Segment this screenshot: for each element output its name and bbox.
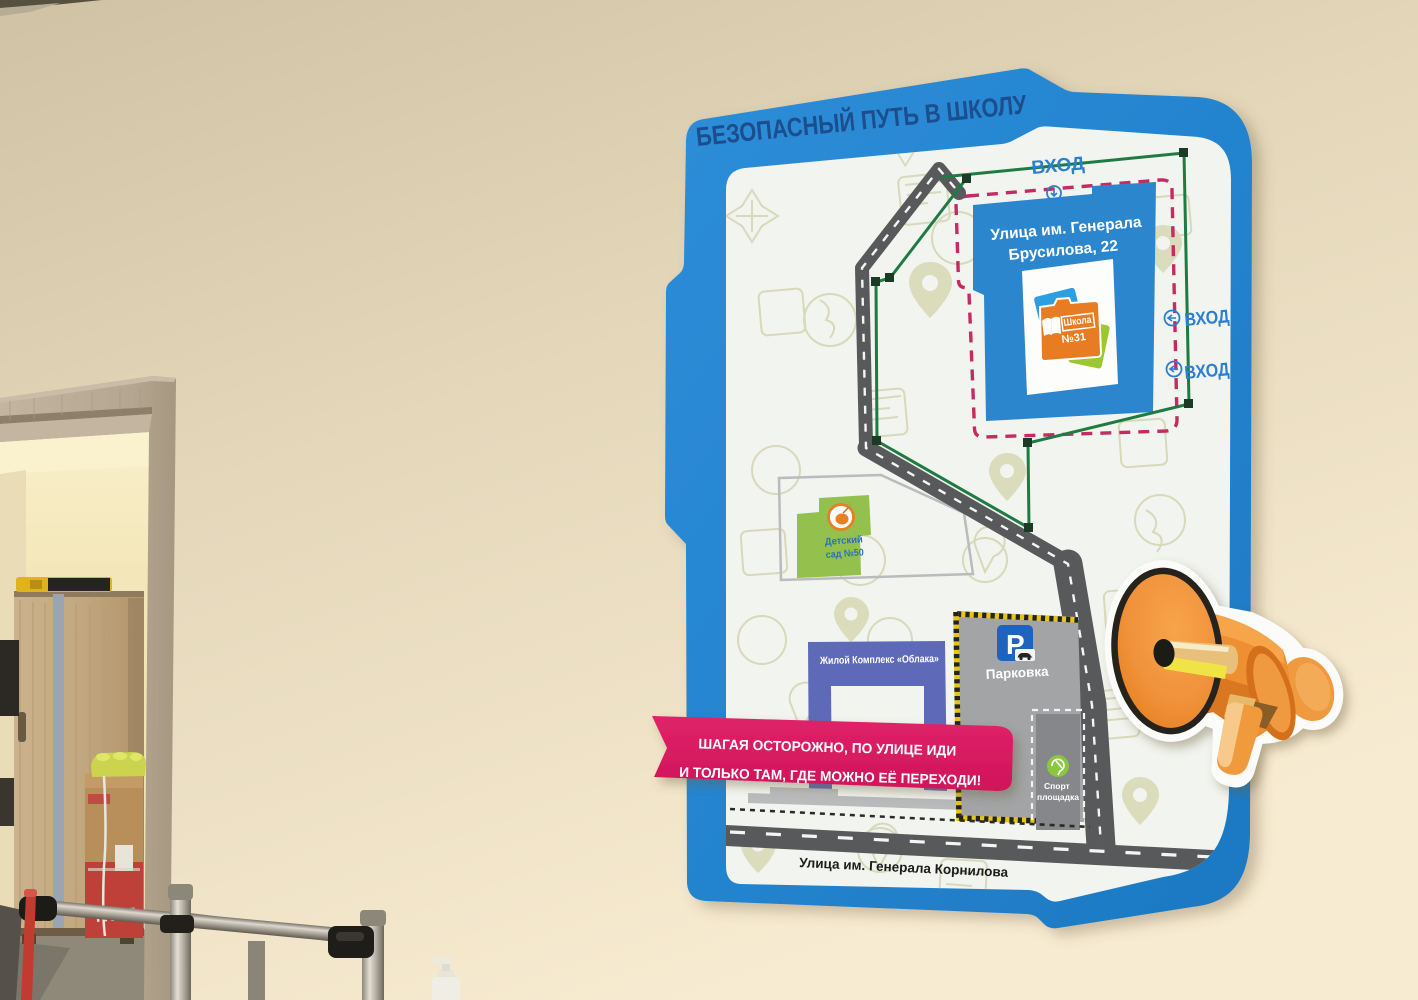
svg-text:площадка: площадка [1037,792,1079,802]
svg-text:ВХОД: ВХОД [1184,305,1231,330]
svg-text:Жилой Комплекс «Облака»: Жилой Комплекс «Облака» [819,653,939,667]
svg-text:ВХОД: ВХОД [1184,358,1231,383]
svg-text:Спорт: Спорт [1044,781,1070,791]
